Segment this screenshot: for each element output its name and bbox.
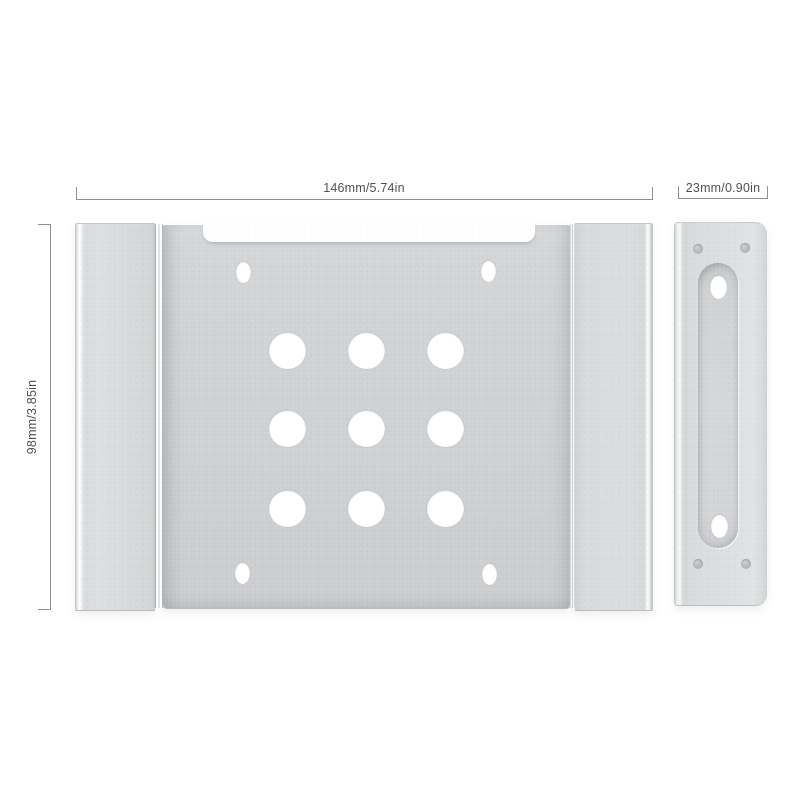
mounting-hole bbox=[348, 490, 385, 527]
product-dimension-diagram: 146mm/5.74in 23mm/0.90in 98mm/3.85in bbox=[0, 0, 800, 800]
screw-slot bbox=[711, 514, 728, 538]
mounting-hole bbox=[269, 490, 306, 527]
main-bracket-holes-layer bbox=[75, 223, 653, 609]
rivet-dot bbox=[693, 244, 703, 254]
side-bracket-holes-layer bbox=[674, 223, 767, 605]
mounting-hole bbox=[427, 410, 464, 447]
screw-slot bbox=[481, 260, 496, 282]
mounting-hole bbox=[348, 410, 385, 447]
main-bracket bbox=[75, 223, 653, 609]
side-bracket bbox=[674, 222, 767, 606]
dimension-tick bbox=[678, 186, 679, 199]
height-dimension-label: 98mm/3.85in bbox=[25, 371, 39, 463]
side-width-dimension-line bbox=[678, 198, 768, 199]
dimension-tick bbox=[76, 187, 77, 200]
width-dimension-label: 146mm/5.74in bbox=[264, 181, 464, 195]
rivet-dot bbox=[740, 243, 750, 253]
screw-slot bbox=[236, 261, 251, 283]
screw-slot bbox=[710, 275, 727, 299]
mounting-hole bbox=[269, 410, 306, 447]
dimension-tick bbox=[38, 609, 51, 610]
rivet-dot bbox=[741, 559, 751, 569]
mounting-hole bbox=[427, 490, 464, 527]
mounting-hole bbox=[427, 332, 464, 369]
dimension-tick bbox=[767, 186, 768, 199]
mounting-hole bbox=[348, 332, 385, 369]
dimension-tick bbox=[38, 224, 51, 225]
screw-slot bbox=[235, 562, 250, 584]
width-dimension-line bbox=[76, 199, 653, 200]
side-width-dimension-label: 23mm/0.90in bbox=[653, 181, 793, 195]
rivet-dot bbox=[693, 559, 703, 569]
mounting-hole bbox=[269, 332, 306, 369]
height-dimension-line bbox=[50, 224, 51, 610]
screw-slot bbox=[482, 563, 497, 585]
